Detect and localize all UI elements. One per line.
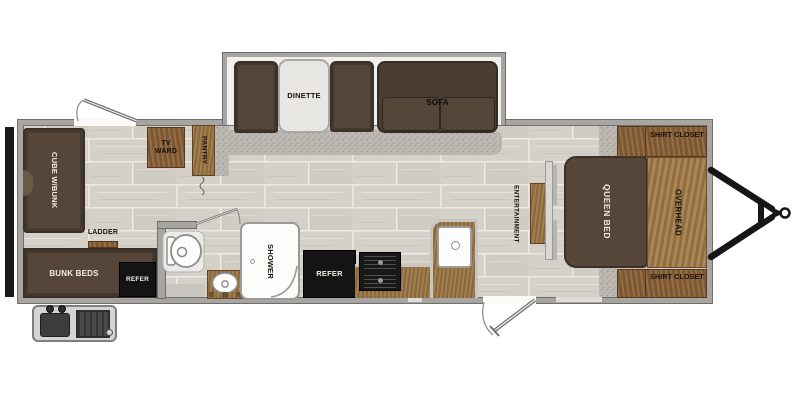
shower-drain (250, 259, 255, 264)
entertainment-label: ENTERTAINMENT (512, 185, 519, 243)
dinette-table: DINETTE (278, 59, 330, 133)
tv-ward-label: TV WARD (151, 140, 181, 156)
shower-label: SHOWER (266, 244, 274, 279)
entry-door-swing (483, 300, 535, 336)
grill-knob-1 (46, 305, 54, 313)
griddle-knob (106, 329, 113, 336)
tv-panel-bottom (553, 220, 557, 260)
kitchen-sink (437, 226, 472, 268)
vanity-knob-left (209, 292, 214, 297)
closet-divider-top (645, 127, 646, 156)
kitchen-refrigerator: REFER (303, 250, 356, 298)
tv-panel-top (553, 165, 557, 205)
ladder-step (88, 241, 118, 248)
shirt-closet-bottom-label: SHIRT CLOSET (648, 274, 706, 282)
dinette-bench-left (234, 61, 278, 133)
entertainment-cabinet (530, 183, 546, 244)
shirt-closet-bottom: SHIRT CLOSET (617, 269, 707, 298)
outdoor-stove (40, 313, 70, 337)
hitch-frame (711, 170, 790, 257)
queen-bed: QUEEN BED (564, 156, 648, 268)
dinette-bench-right (330, 61, 374, 132)
overhead-cabinet: OVERHEAD (647, 157, 707, 268)
pantry: PANTRY (192, 125, 215, 176)
bunk-refer-label: REFER (126, 276, 149, 283)
bathroom-wall-top (158, 222, 196, 228)
rear-door-opening (74, 118, 136, 126)
outdoor-griddle (76, 310, 110, 338)
bunk-refrigerator: REFER (119, 262, 156, 297)
queen-bed-label: QUEEN BED (601, 184, 611, 239)
rear-bumper (5, 127, 14, 297)
tv-wardrobe: TV WARD (147, 127, 185, 168)
sofa-label: SOFA (379, 99, 496, 108)
entertainment-label-box: ENTERTAINMENT (508, 168, 524, 260)
pantry-label: PANTRY (200, 136, 208, 164)
entertainment-wall-panel (545, 161, 553, 260)
shirt-closet-top: SHIRT CLOSET (617, 126, 707, 157)
sink-drain (451, 241, 460, 250)
cube-bunk-label: CUBE W/BUNK (50, 152, 58, 208)
bathroom-wall-left (158, 222, 165, 298)
shirt-closet-top-label: SHIRT CLOSET (648, 132, 706, 140)
stove-grate-top (364, 256, 396, 269)
bunk-beds-label: BUNK BEDS (27, 270, 121, 279)
shower: SHOWER (240, 222, 300, 300)
sofa: SOFA (377, 61, 498, 133)
ladder-label: LADDER (80, 229, 126, 237)
kitchen-refer-label: REFER (316, 270, 342, 278)
window-marker-bottom-right (556, 297, 602, 302)
entry-door-opening (483, 296, 536, 304)
stove-grate-bottom (364, 273, 396, 288)
closet-divider-bottom (645, 270, 646, 297)
floorplan-canvas: DINETTE SOFA CUBE W/BUNK LADDER BUNK BED… (0, 0, 800, 400)
dinette-label: DINETTE (287, 92, 320, 100)
overhead-label: OVERHEAD (673, 189, 682, 236)
outdoor-kitchen (32, 305, 117, 342)
grill-knob-2 (58, 305, 66, 313)
stove-cooktop (359, 252, 401, 291)
